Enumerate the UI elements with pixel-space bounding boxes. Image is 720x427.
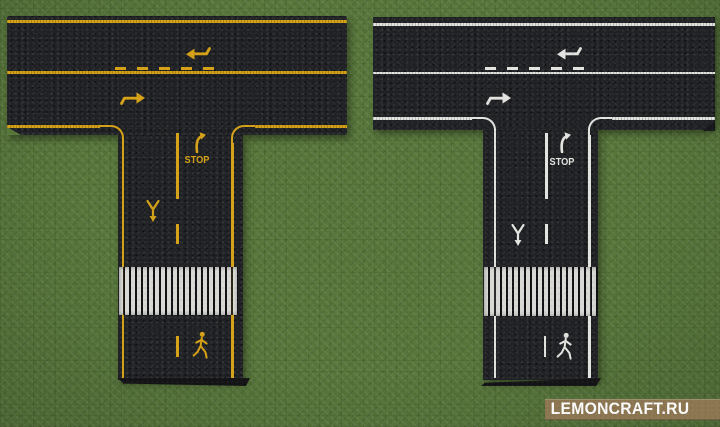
edge-line-corner-right: [588, 117, 612, 135]
stop-marking-text: STOP: [542, 157, 582, 169]
grass-field: STOP: [0, 0, 720, 427]
lane-arrow-left-icon: [555, 45, 583, 63]
yield-ahead-icon: [145, 199, 161, 223]
watermark-banner: LEMONCRAFT.RU: [545, 399, 720, 420]
pedestrian-walking-icon: [191, 331, 211, 359]
crosswalk-zebra: [484, 267, 598, 316]
watermark-text: LEMONCRAFT.RU: [550, 400, 689, 419]
edge-line-bottom-right: [255, 125, 347, 128]
edge-line-bottom-left: [7, 125, 100, 128]
center-line-dashes: [115, 67, 215, 70]
center-line: [7, 71, 347, 74]
center-line: [373, 72, 715, 75]
stem-edge-line-right: [231, 143, 234, 378]
lane-arrow-left-icon: [184, 45, 212, 63]
edge-line-top: [7, 20, 347, 23]
road-stem-section: [118, 135, 243, 380]
edge-line-bottom-left: [373, 117, 472, 120]
edge-line-bottom-right: [612, 117, 715, 120]
edge-line-corner-right: [231, 125, 255, 143]
road-t-intersection-white: STOP: [373, 17, 715, 380]
stop-marking-text: STOP: [177, 155, 217, 167]
road-top-section: [7, 16, 347, 135]
road-t-intersection-yellow: STOP: [7, 16, 347, 380]
stem-center-dash: [176, 224, 179, 244]
stem-center-dash: [176, 336, 179, 357]
stem-edge-line-right: [588, 135, 591, 378]
pedestrian-walking-icon: [555, 332, 575, 360]
road-stem-end-bevel: [118, 378, 250, 386]
turn-right-curve-arrow-icon: [558, 131, 572, 153]
edge-line-top: [373, 23, 715, 26]
stem-edge-line-left: [122, 143, 125, 378]
lane-arrow-right-icon: [119, 89, 147, 107]
crosswalk-zebra: [119, 267, 238, 315]
yield-ahead-icon: [510, 223, 526, 247]
stem-center-dash: [545, 224, 548, 244]
turn-right-curve-arrow-icon: [193, 131, 207, 153]
center-line-dashes: [485, 67, 585, 70]
lane-arrow-right-icon: [485, 89, 513, 107]
stem-edge-line-left: [494, 135, 497, 378]
stem-center-dash: [544, 336, 547, 357]
